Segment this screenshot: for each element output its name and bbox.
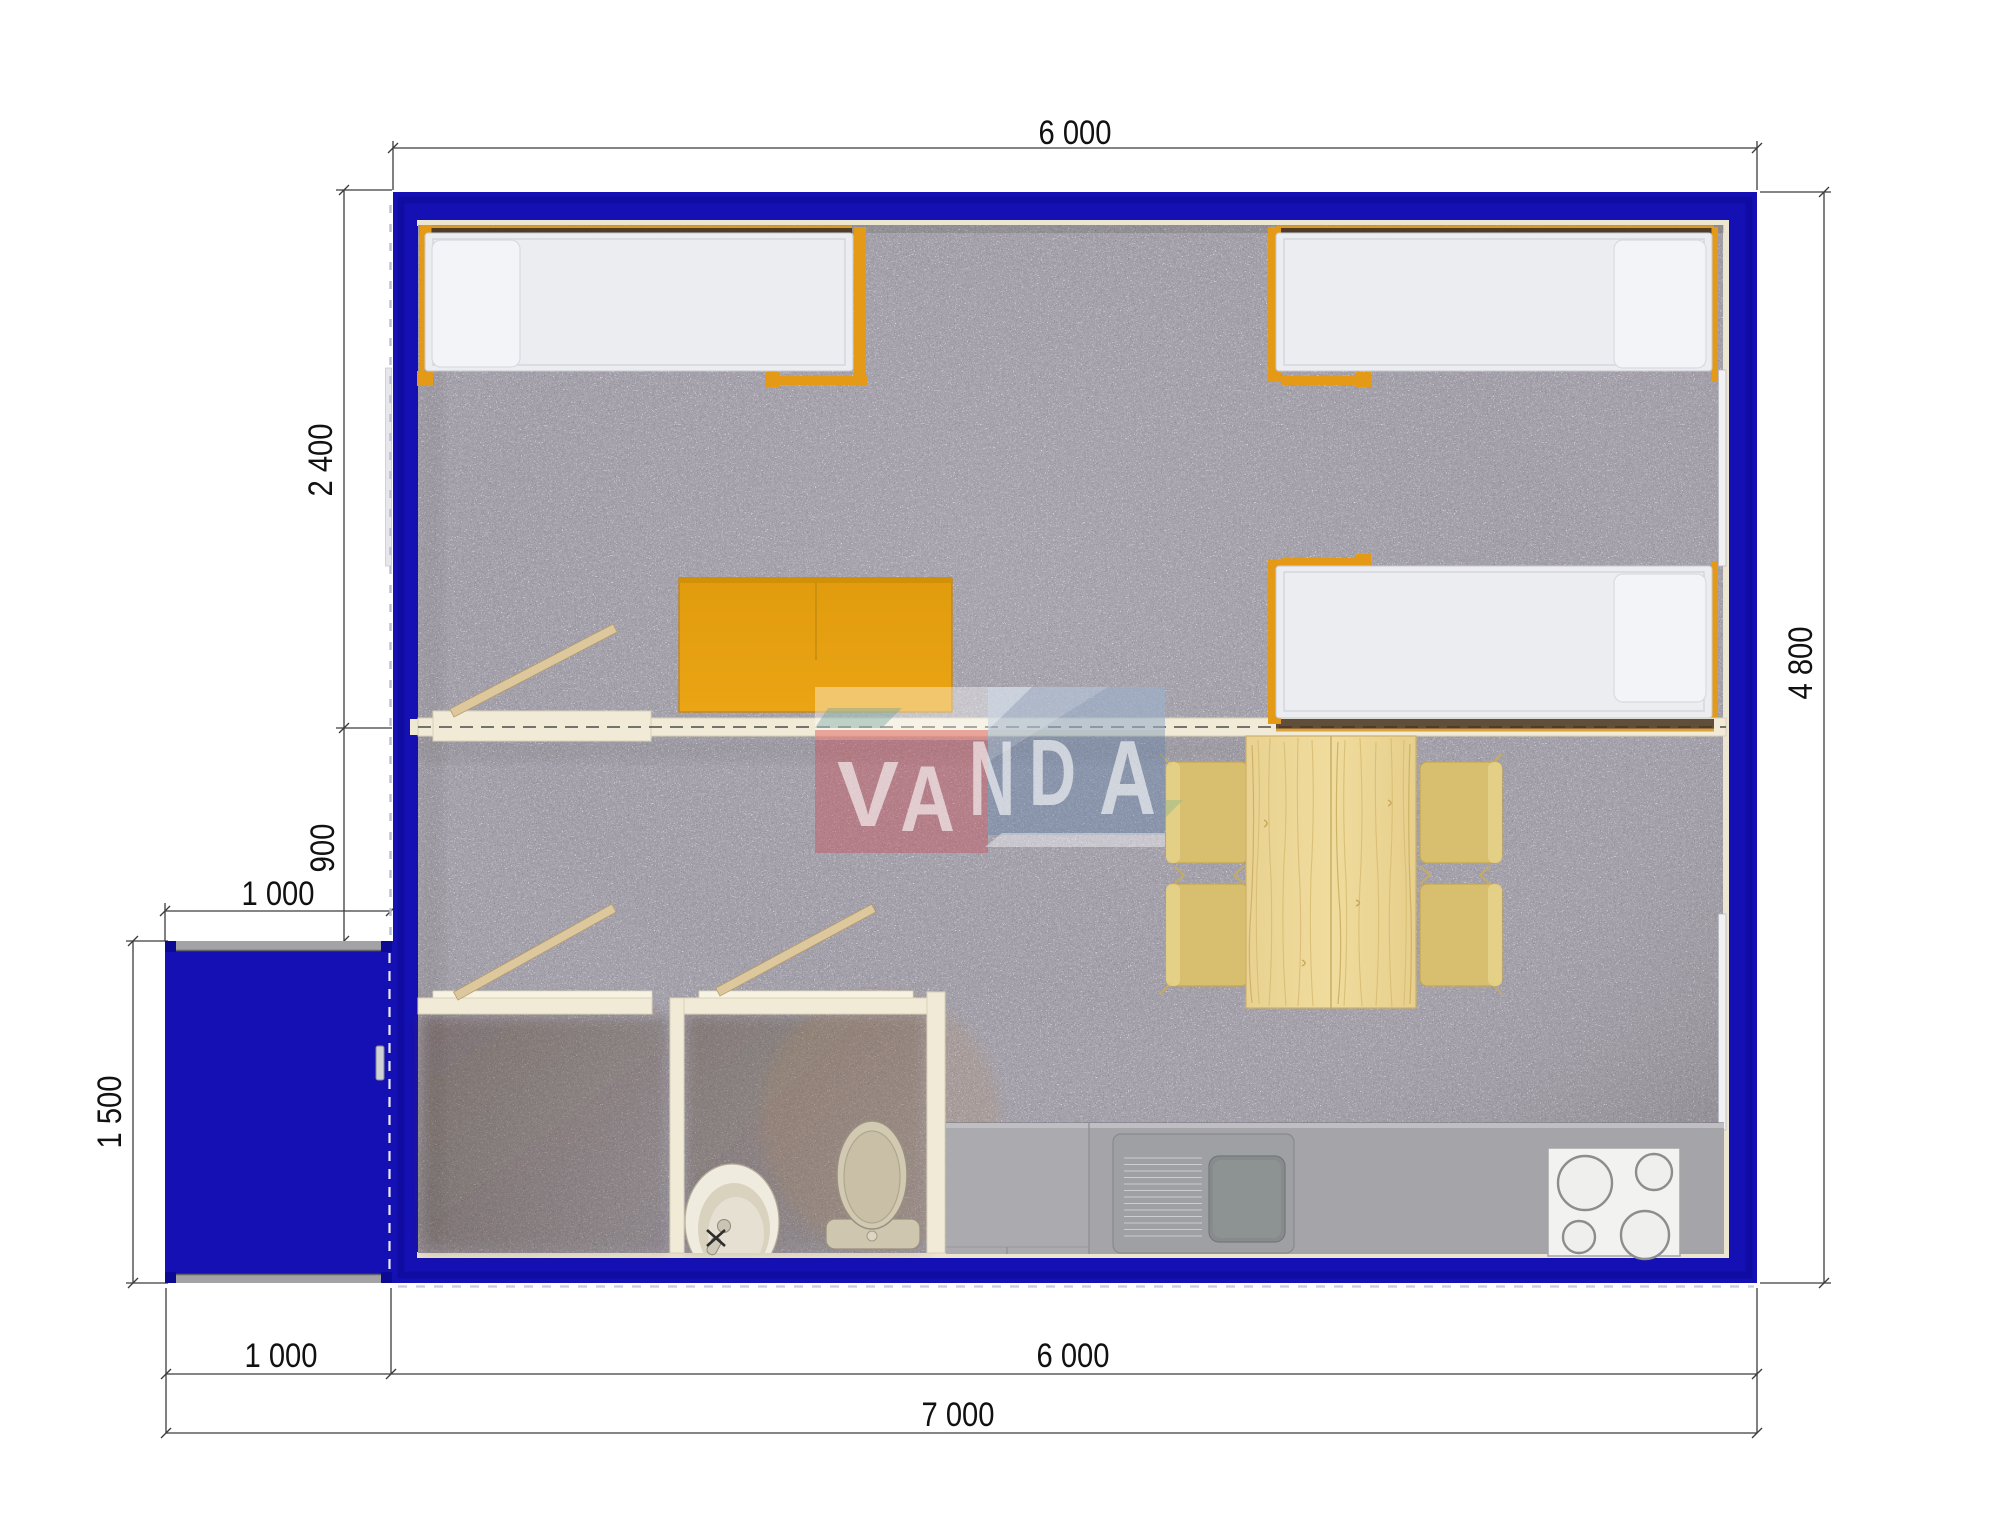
svg-text:N: N: [969, 718, 1015, 838]
svg-text:A: A: [900, 746, 955, 851]
svg-text:1 000: 1 000: [245, 1337, 318, 1375]
svg-text:1 000: 1 000: [242, 875, 315, 913]
svg-text:6 000: 6 000: [1039, 114, 1112, 152]
svg-text:A: A: [1099, 719, 1156, 837]
svg-text:4 800: 4 800: [1782, 627, 1820, 700]
svg-text:1 500: 1 500: [91, 1076, 129, 1149]
svg-text:V: V: [837, 742, 899, 846]
svg-text:900: 900: [304, 824, 342, 873]
svg-text:2 400: 2 400: [302, 424, 340, 497]
svg-text:D: D: [1029, 720, 1076, 826]
svg-text:7 000: 7 000: [922, 1396, 995, 1434]
svg-text:6 000: 6 000: [1037, 1337, 1110, 1375]
